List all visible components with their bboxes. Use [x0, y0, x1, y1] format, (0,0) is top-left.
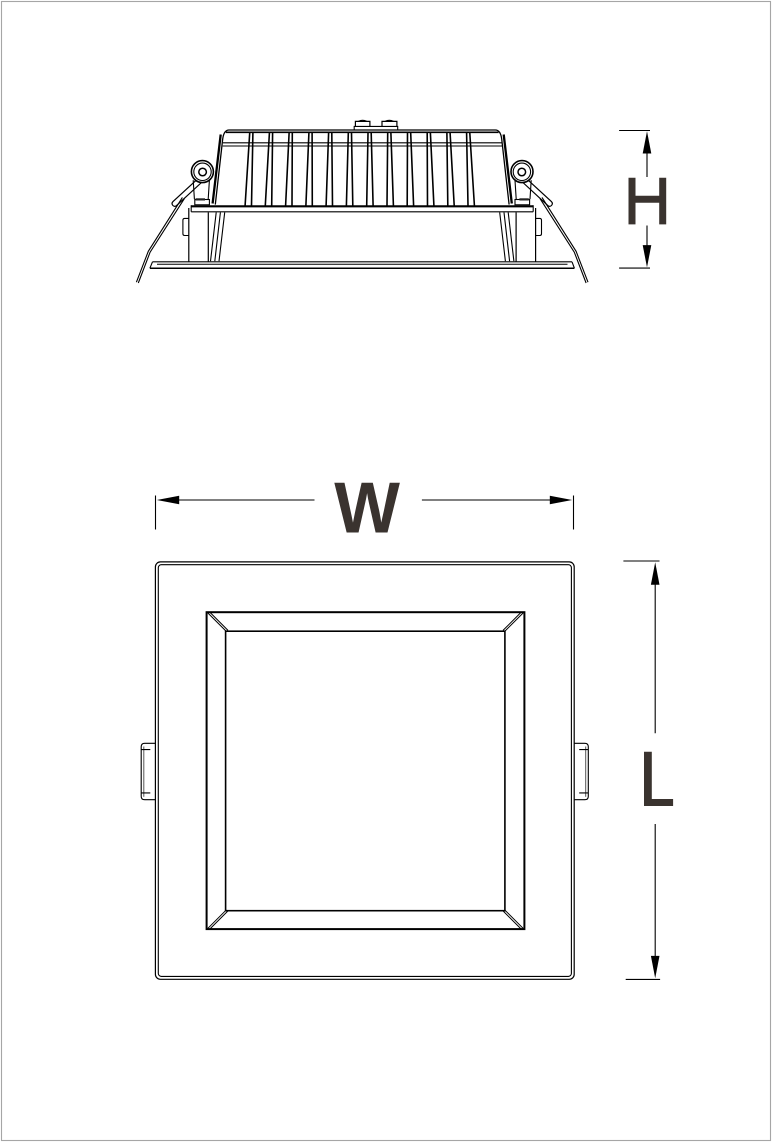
- svg-text:W: W: [334, 468, 400, 549]
